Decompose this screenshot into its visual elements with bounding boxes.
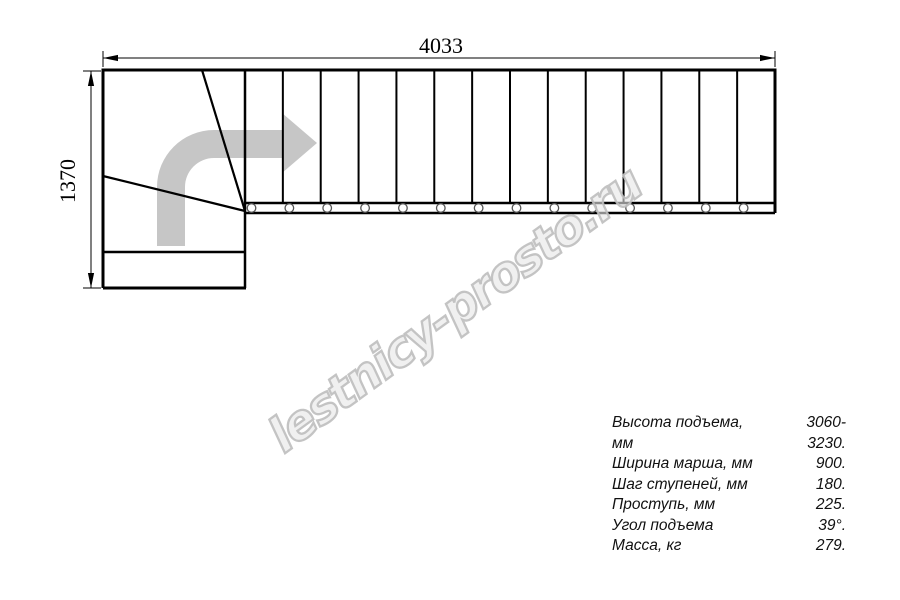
dimension-width-value: 1370 [55,159,80,203]
spec-value: 225. [816,495,846,516]
spec-row: Проступь, мм 225. [612,495,846,516]
mount-hole-circle [664,204,673,213]
mount-hole-circle [739,204,748,213]
spec-label: Ширина марша, мм [612,454,753,475]
spec-label: Проступь, мм [612,495,715,516]
spec-row: Высота подъема, мм 3060-3230. [612,413,846,454]
dim-arrow-right-icon [760,55,775,61]
specs-table: Высота подъема, мм 3060-3230. Ширина мар… [612,413,846,557]
spec-value: 39°. [818,516,846,537]
spec-row: Масса, кг 279. [612,536,846,557]
dim-arrow-left-icon [103,55,118,61]
mount-hole-circle [436,204,445,213]
spec-value: 900. [816,454,846,475]
spec-row: Угол подъема 39°. [612,516,846,537]
mount-hole-circle [323,204,332,213]
spec-row: Шаг ступеней, мм 180. [612,475,846,496]
stair-outline [102,70,777,288]
spec-row: Ширина марша, мм 900. [612,454,846,475]
dimension-width [83,71,101,288]
mount-hole-circle [550,204,559,213]
mount-hole-circle [588,204,597,213]
direction-arrow [157,113,317,246]
mount-hole-circle [361,204,370,213]
mount-hole-circle [626,204,635,213]
dim-arrow-down-icon [88,273,94,288]
mount-hole-circle [474,204,483,213]
mount-hole-circle [399,204,408,213]
spec-value: 3060-3230. [768,413,846,454]
mount-hole-circle [701,204,710,213]
spec-label: Шаг ступеней, мм [612,475,748,496]
dim-arrow-up-icon [88,71,94,86]
stair-drawing-page: 4033 1370 lestnicy [0,0,900,600]
dimension-length-value: 4033 [419,33,463,58]
spec-value: 279. [816,536,846,557]
spec-label: Угол подъема [612,516,713,537]
mount-hole-circle [285,204,294,213]
mount-hole-circle [247,204,256,213]
mount-hole-circle [512,204,521,213]
mount-circles [247,204,748,213]
step-lines [283,70,737,203]
spec-value: 180. [816,475,846,496]
spec-label: Масса, кг [612,536,681,557]
spec-label: Высота подъема, мм [612,413,768,454]
